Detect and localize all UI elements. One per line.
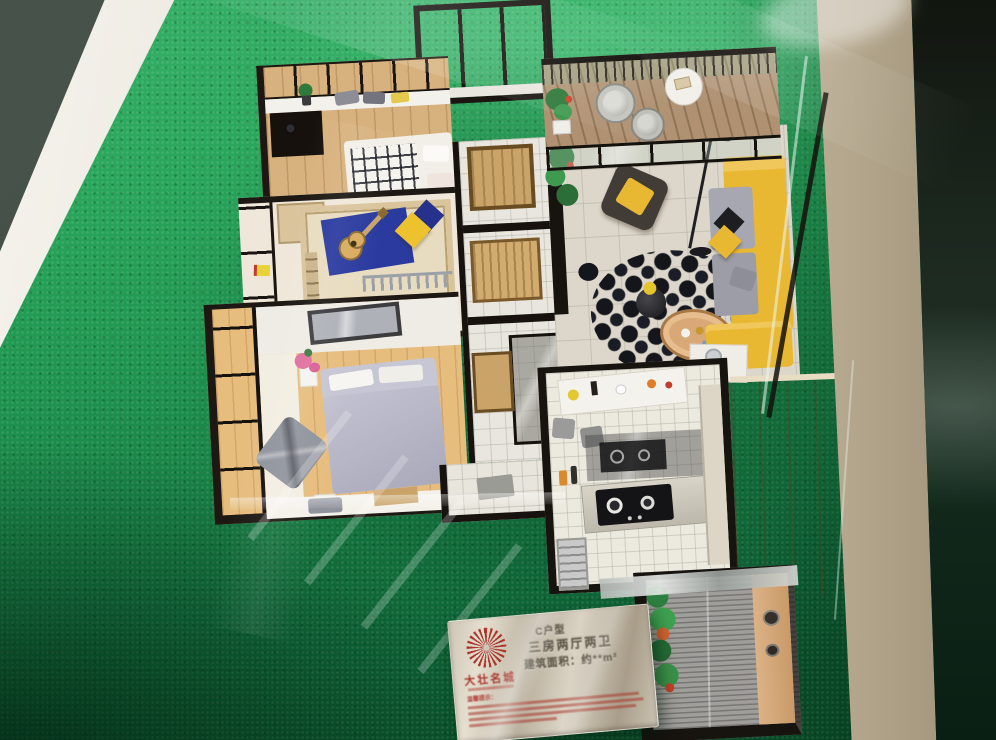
glass-line [706,577,711,727]
room-lounge-balcony [541,47,780,147]
burner-1 [606,497,623,514]
table-cup [680,328,690,338]
model-photo-scene: 大壮名城 C户型 三房两厅两卫 建筑面积：约**m² 温馨提示： [0,0,996,740]
black-desk [270,111,324,158]
plaque-glare [448,605,658,740]
pink-flowers-2 [309,362,321,373]
stool-1 [552,418,576,440]
master-bed [320,357,449,494]
rug-pebble [578,262,599,281]
desk-cushion [308,497,343,514]
room-service-balcony [633,565,802,740]
cooktop [595,484,674,526]
cooktop-reflection [599,439,666,472]
room-kitchen [537,358,739,595]
sink [556,537,589,590]
wall-bar-2 [468,312,564,325]
room-master-bedroom [204,292,470,525]
master-pillow-2 [378,364,423,383]
pantry-panel [698,384,729,565]
master-pillow [328,369,374,392]
burner-reflection [610,449,625,464]
seat-pillow-gray-2 [363,92,385,105]
burner-2 [640,495,655,510]
yellow-book [254,265,270,276]
balcony-plant-a [646,585,669,608]
spec-plaque: 大壮名城 C户型 三房两厅两卫 建筑面积：约**m² 温馨提示： [447,603,659,740]
entry-mat [476,474,514,500]
burner-reflection-2 [638,449,651,462]
spice-bottle-dark [571,466,578,484]
white-dish [615,384,627,395]
food-red [665,381,673,389]
plant-pot [302,95,312,105]
knob [628,516,632,520]
dark-bottle [591,381,598,396]
bed-pillow [423,145,449,161]
armchair [598,162,671,234]
wall-bar-1 [463,220,559,233]
knob-2 [638,515,642,519]
balcony-plant-2 [554,104,573,121]
floor-plant-leaf-3 [556,183,579,206]
rattan-chair-1 [595,82,637,124]
armchair-pillow-yellow [615,177,655,216]
wood-door-2 [470,237,543,303]
wood-door-3 [471,351,514,413]
glass-partition [585,429,705,481]
table-gold-bowl [695,326,704,335]
spice-bottle-orange [559,470,568,485]
dining-counter [557,367,688,416]
balcony-plant-red [565,96,572,103]
master-duvet [323,385,449,495]
food-orange [647,379,657,389]
balcony-plant-red2 [665,683,674,692]
food-yellow [567,389,579,401]
planter [552,120,571,135]
flower-leaves [304,348,312,356]
rattan-chair-2 [630,107,666,143]
wood-door-1 [467,144,536,211]
